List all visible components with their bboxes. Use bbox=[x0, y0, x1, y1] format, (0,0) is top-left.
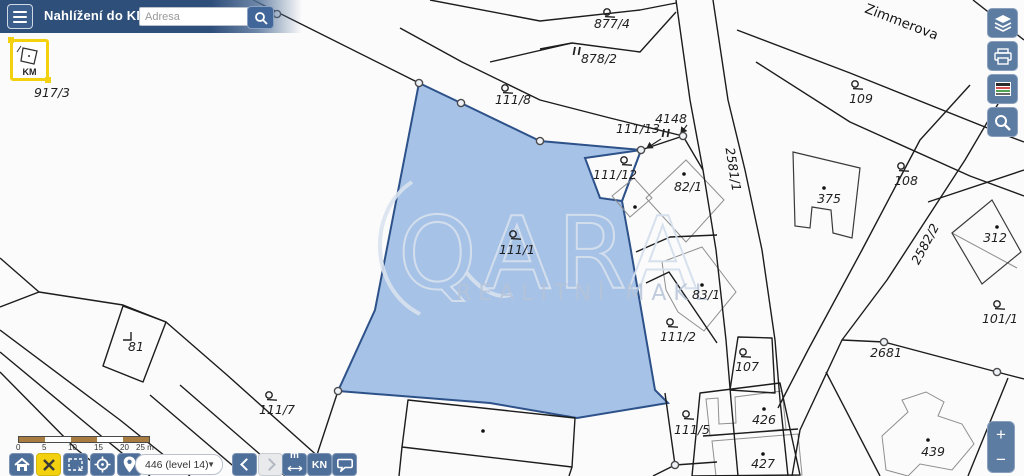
building-dot-icon bbox=[762, 407, 766, 411]
feedback-button[interactable] bbox=[332, 453, 357, 476]
search-icon bbox=[254, 11, 268, 25]
layers-button[interactable] bbox=[987, 8, 1018, 38]
land-use-icon bbox=[511, 239, 521, 240]
chevron-left-icon bbox=[240, 458, 253, 471]
land-use-icon bbox=[899, 171, 909, 172]
parcel-label: 878/2 bbox=[581, 51, 617, 66]
scale-tick: 25 m bbox=[136, 443, 154, 452]
app-window: QARA REALITNÍ MAKL 917/3877/4878/2111/81… bbox=[0, 0, 1024, 476]
printer-icon bbox=[994, 48, 1012, 65]
parcel-label: 111/12 bbox=[593, 167, 637, 182]
parcel-label: 111/2 bbox=[660, 329, 696, 344]
land-use-icon bbox=[267, 400, 277, 401]
parcel-label: 111/13 bbox=[616, 121, 660, 136]
locate-target-button[interactable] bbox=[90, 453, 115, 476]
home-button[interactable] bbox=[9, 453, 34, 476]
map-sheet-value: 446 (level 14) bbox=[145, 459, 209, 471]
parcel-label: 111/5 bbox=[674, 422, 710, 437]
measure-icon: m bbox=[287, 452, 303, 476]
parcel-label: 83/1 bbox=[692, 287, 720, 302]
building-dot-icon bbox=[481, 429, 485, 433]
select-rect-icon bbox=[68, 458, 84, 472]
chevron-down-icon: ▼ bbox=[207, 460, 215, 469]
land-use-icon bbox=[741, 357, 751, 358]
area-select-button[interactable] bbox=[63, 453, 88, 476]
chevron-right-icon bbox=[263, 458, 276, 471]
parcel-label: 108 bbox=[894, 173, 918, 188]
measure-button[interactable]: m bbox=[282, 453, 307, 476]
map-canvas[interactable]: QARA REALITNÍ MAKL 917/3877/4878/2111/81… bbox=[0, 0, 1024, 476]
layers-icon bbox=[993, 14, 1013, 32]
building-dot-icon bbox=[761, 452, 765, 456]
watermark: QARA REALITNÍ MAKL bbox=[380, 182, 714, 314]
parcel-label: 81 bbox=[128, 339, 144, 354]
zoom-in-button[interactable]: + bbox=[988, 422, 1014, 447]
speech-bubble-icon bbox=[337, 458, 353, 472]
parcel-label: 4148 bbox=[655, 111, 687, 126]
km-label: KM bbox=[13, 67, 46, 77]
parcel-label: 2681 bbox=[870, 345, 902, 360]
map-sheet-dropdown[interactable]: 446 (level 14) ▼ bbox=[135, 454, 223, 475]
parcel-label: 82/1 bbox=[674, 179, 702, 194]
legend-button[interactable] bbox=[987, 74, 1018, 104]
legend-icon bbox=[994, 81, 1012, 97]
land-use-icon bbox=[622, 165, 632, 166]
building-dot-icon bbox=[700, 283, 704, 287]
km-corner-mark bbox=[45, 77, 51, 83]
land-use-icon bbox=[668, 327, 678, 328]
parcel-label: 101/1 bbox=[982, 311, 1018, 326]
address-search-input[interactable] bbox=[139, 7, 253, 26]
scale-tick: 10 bbox=[68, 443, 77, 452]
scale-tick: 5 bbox=[42, 443, 46, 452]
land-use-icon bbox=[853, 89, 863, 90]
app-title: Nahlížení do KN bbox=[44, 8, 146, 23]
parcel-label: 312 bbox=[983, 230, 1007, 245]
land-use-icon bbox=[684, 419, 694, 420]
building-dot-icon bbox=[682, 172, 686, 176]
km-map-tool-button[interactable]: KM bbox=[10, 39, 49, 81]
parcel-sketch-icon bbox=[14, 44, 44, 68]
home-icon bbox=[14, 457, 30, 472]
print-button[interactable] bbox=[987, 41, 1018, 71]
building-dot-icon bbox=[926, 438, 930, 442]
scale-tick: 20 bbox=[120, 443, 129, 452]
map-search-button[interactable] bbox=[987, 107, 1018, 137]
parcel-label: 439 bbox=[921, 444, 945, 459]
land-use-icon bbox=[605, 17, 615, 18]
close-icon bbox=[43, 459, 55, 471]
building-dot-icon bbox=[995, 225, 999, 229]
target-icon bbox=[94, 456, 111, 473]
kn-label: KN bbox=[312, 459, 327, 471]
scale-tick: 15 bbox=[94, 443, 103, 452]
clear-selection-button[interactable] bbox=[36, 453, 61, 476]
search-button[interactable] bbox=[247, 6, 274, 29]
watermark-subtitle: REALITNÍ MAKL bbox=[456, 280, 714, 306]
parcel-label: 109 bbox=[849, 91, 873, 106]
zoom-out-button[interactable]: − bbox=[988, 447, 1014, 472]
back-button[interactable] bbox=[232, 453, 257, 476]
land-use-icon bbox=[995, 309, 1005, 310]
parcel-label: 375 bbox=[817, 191, 841, 206]
parcel-label: 877/4 bbox=[594, 16, 630, 31]
parcel-label: 111/1 bbox=[499, 242, 535, 257]
scale-tick: 0 bbox=[16, 443, 20, 452]
kn-button[interactable]: KN bbox=[307, 453, 332, 476]
km-corner-mark bbox=[8, 37, 14, 43]
building-dot-icon bbox=[633, 205, 637, 209]
building-dot-icon bbox=[822, 186, 826, 190]
menu-button[interactable] bbox=[7, 4, 33, 29]
parcel-label: 917/3 bbox=[34, 85, 70, 100]
scale-bar bbox=[18, 436, 150, 443]
parcel-label: 426 bbox=[752, 412, 776, 427]
magnifier-icon bbox=[994, 114, 1011, 131]
land-use-icon bbox=[503, 93, 513, 94]
forward-button[interactable] bbox=[258, 453, 283, 476]
parcel-label: 427 bbox=[751, 456, 775, 471]
zoom-control: + − bbox=[987, 421, 1015, 473]
parcel-label: 107 bbox=[735, 359, 759, 374]
parcel-label: 111/8 bbox=[495, 92, 531, 107]
parcel-label: 111/7 bbox=[259, 402, 295, 417]
header-bar: Nahlížení do KN bbox=[0, 0, 302, 33]
